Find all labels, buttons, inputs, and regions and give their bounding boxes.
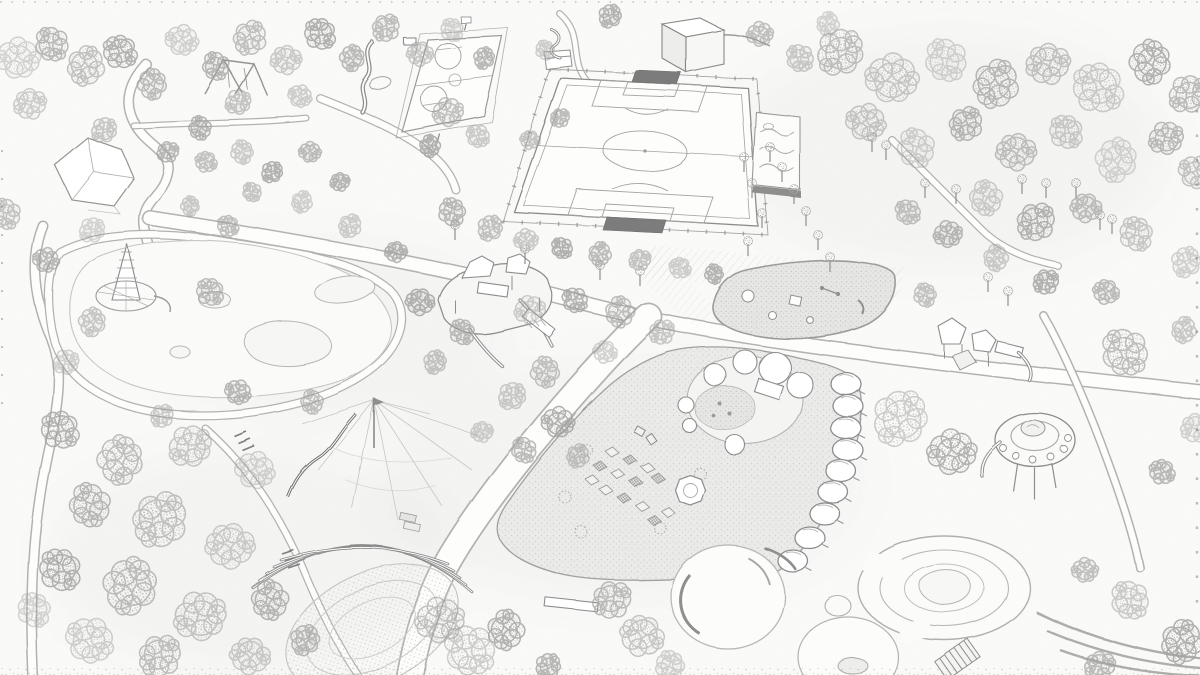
goal-south [603,217,666,233]
picnic-octagon [675,475,705,505]
park-render-canvas [0,0,1200,675]
bottom-artifact-strip [0,668,1200,675]
small-circle [825,596,851,616]
goal-north [632,70,681,84]
cube-pavilion [662,18,724,72]
park-render [0,0,1200,675]
